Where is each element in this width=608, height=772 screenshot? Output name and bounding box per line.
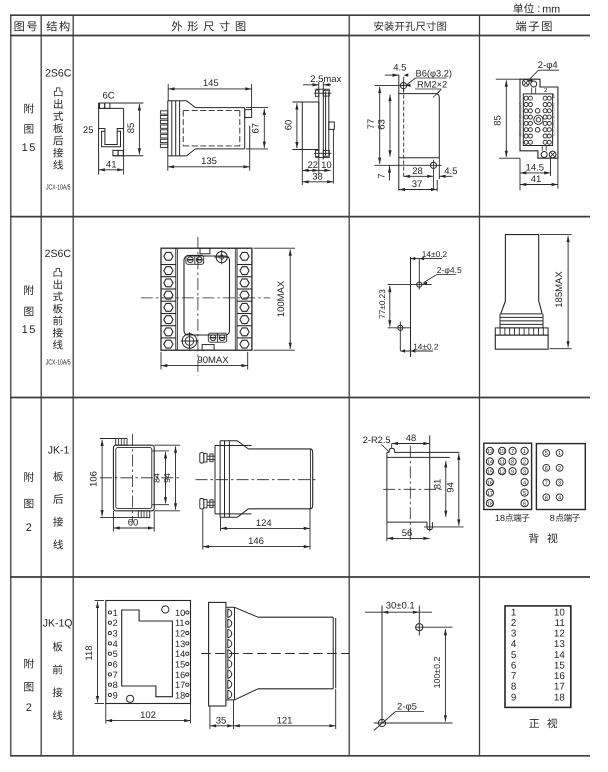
svg-text:1: 1 xyxy=(511,607,516,618)
svg-text:4.5: 4.5 xyxy=(444,166,457,177)
svg-text:77: 77 xyxy=(366,119,377,130)
svg-text:2: 2 xyxy=(511,618,516,629)
svg-text:mm: mm xyxy=(542,3,560,15)
svg-text:16: 16 xyxy=(175,670,185,680)
svg-text:JK-1: JK-1 xyxy=(48,444,70,456)
svg-text:6C: 6C xyxy=(103,90,115,101)
svg-text:63: 63 xyxy=(377,119,388,130)
svg-text:18: 18 xyxy=(495,513,505,523)
svg-text:14±0.2: 14±0.2 xyxy=(413,341,439,351)
svg-text:B6(φ3.2): B6(φ3.2) xyxy=(416,68,453,78)
svg-text:17: 17 xyxy=(487,491,493,497)
svg-text:16: 16 xyxy=(554,671,565,682)
svg-text:1: 1 xyxy=(558,451,561,457)
svg-text:3: 3 xyxy=(511,629,517,640)
svg-text:JCX-10A/5: JCX-10A/5 xyxy=(46,182,71,191)
svg-text:10: 10 xyxy=(321,160,332,171)
svg-text:11: 11 xyxy=(555,618,565,629)
svg-text:4: 4 xyxy=(523,480,526,486)
svg-text:14: 14 xyxy=(175,649,185,659)
svg-text:11: 11 xyxy=(499,460,505,466)
svg-text:2: 2 xyxy=(558,466,561,472)
svg-text:41: 41 xyxy=(106,159,117,170)
svg-text:15: 15 xyxy=(22,324,37,336)
svg-text:1: 1 xyxy=(552,94,555,100)
svg-text:1: 1 xyxy=(523,449,526,455)
svg-text:12: 12 xyxy=(175,629,185,639)
svg-text:9: 9 xyxy=(511,469,514,475)
svg-text:8: 8 xyxy=(511,460,514,466)
svg-text:14±0.2: 14±0.2 xyxy=(422,249,448,259)
svg-text:4.5: 4.5 xyxy=(393,62,406,73)
svg-text:6: 6 xyxy=(511,660,517,671)
svg-text::: : xyxy=(537,3,540,15)
svg-text:146: 146 xyxy=(248,536,264,547)
svg-text:8: 8 xyxy=(113,680,118,690)
svg-text:13: 13 xyxy=(487,449,493,455)
svg-text:11: 11 xyxy=(175,618,185,628)
svg-text:67: 67 xyxy=(250,123,261,134)
svg-text:3: 3 xyxy=(558,481,561,487)
svg-text:100±0.2: 100±0.2 xyxy=(432,657,442,689)
svg-text:118: 118 xyxy=(84,645,95,660)
svg-text:5: 5 xyxy=(511,650,517,661)
svg-text:94: 94 xyxy=(445,482,456,493)
svg-text:30±0.1: 30±0.1 xyxy=(386,601,415,612)
svg-text:2: 2 xyxy=(26,702,32,714)
svg-text:10: 10 xyxy=(554,607,565,618)
svg-text:102: 102 xyxy=(140,710,156,721)
svg-text:JCX-10A/5 JCX-10A/5: JCX-10A/5 JCX-10A/5 xyxy=(551,103,555,137)
svg-text:1: 1 xyxy=(113,608,118,618)
svg-text:28: 28 xyxy=(412,166,423,177)
svg-text:60: 60 xyxy=(283,120,294,131)
svg-text:9: 9 xyxy=(511,692,516,703)
svg-text:8: 8 xyxy=(511,682,517,693)
svg-text:4: 4 xyxy=(511,639,517,650)
svg-text:7: 7 xyxy=(511,449,514,455)
svg-text:15: 15 xyxy=(487,469,493,475)
svg-text:17: 17 xyxy=(175,680,185,690)
svg-text:60: 60 xyxy=(128,518,139,529)
svg-text:85: 85 xyxy=(126,123,137,134)
svg-text:8: 8 xyxy=(550,513,555,523)
svg-text:13: 13 xyxy=(175,639,185,649)
svg-text:37: 37 xyxy=(412,179,423,190)
svg-text:2: 2 xyxy=(113,618,118,628)
svg-text:2: 2 xyxy=(523,460,526,466)
svg-text:2S6C: 2S6C xyxy=(45,248,72,260)
svg-text:10: 10 xyxy=(499,449,505,455)
svg-text:2: 2 xyxy=(26,522,32,534)
svg-text:14: 14 xyxy=(554,650,565,661)
svg-text:15: 15 xyxy=(175,659,185,669)
svg-text:35: 35 xyxy=(216,716,227,727)
svg-text:106: 106 xyxy=(88,471,99,487)
svg-text:7: 7 xyxy=(545,481,548,487)
svg-text:3: 3 xyxy=(523,469,526,475)
svg-text:145: 145 xyxy=(203,78,219,89)
svg-text:48: 48 xyxy=(406,433,416,443)
svg-text:12: 12 xyxy=(554,629,565,640)
svg-text:77±0.23: 77±0.23 xyxy=(378,289,387,319)
svg-text:12: 12 xyxy=(499,469,505,475)
svg-text:15: 15 xyxy=(554,660,565,671)
svg-text:18: 18 xyxy=(554,692,565,703)
svg-text:8: 8 xyxy=(545,495,548,501)
svg-text:5: 5 xyxy=(545,451,548,457)
svg-text:JCX-10A/5 JCX-10A/5: JCX-10A/5 JCX-10A/5 xyxy=(519,103,523,137)
svg-text:6: 6 xyxy=(545,466,548,472)
svg-text:13: 13 xyxy=(554,639,565,650)
svg-text:7: 7 xyxy=(511,671,516,682)
svg-text:JCX-10A/5: JCX-10A/5 xyxy=(46,358,71,367)
svg-text:JK-1Q: JK-1Q xyxy=(43,617,73,629)
svg-text:6: 6 xyxy=(113,659,118,669)
svg-text:9: 9 xyxy=(113,690,118,700)
svg-text:18: 18 xyxy=(175,690,185,700)
svg-text:10: 10 xyxy=(175,608,185,618)
svg-text:2-R2.5: 2-R2.5 xyxy=(363,435,391,445)
svg-text:185MAX: 185MAX xyxy=(554,271,565,308)
svg-text:2-φ4.5: 2-φ4.5 xyxy=(437,265,462,275)
svg-text:90MAX: 90MAX xyxy=(197,355,229,366)
svg-text:2-φ5: 2-φ5 xyxy=(397,702,417,713)
svg-text:5: 5 xyxy=(523,491,526,497)
svg-text:5: 5 xyxy=(113,649,118,659)
svg-text:3: 3 xyxy=(113,629,118,639)
svg-text:RM2×2: RM2×2 xyxy=(417,80,447,90)
svg-text:100MAX: 100MAX xyxy=(276,280,287,317)
svg-text:15: 15 xyxy=(22,142,37,154)
svg-text:2.5max: 2.5max xyxy=(310,74,341,85)
svg-text:16: 16 xyxy=(487,480,493,486)
svg-text:135: 135 xyxy=(201,156,217,167)
svg-text:7: 7 xyxy=(376,173,387,178)
svg-text:4: 4 xyxy=(558,495,561,501)
svg-text:2S6C: 2S6C xyxy=(45,67,72,79)
svg-text:7: 7 xyxy=(113,670,118,680)
svg-text:18: 18 xyxy=(487,501,493,507)
svg-text:25: 25 xyxy=(83,125,94,136)
svg-text:38: 38 xyxy=(312,171,323,182)
svg-text:121: 121 xyxy=(277,716,293,727)
svg-text:124: 124 xyxy=(256,518,272,529)
svg-text:14: 14 xyxy=(487,460,493,466)
svg-text:85: 85 xyxy=(493,115,504,126)
svg-text:56: 56 xyxy=(402,528,413,539)
svg-text:94: 94 xyxy=(162,473,172,483)
svg-text:14.5: 14.5 xyxy=(526,162,545,173)
svg-text:6: 6 xyxy=(523,501,526,507)
svg-text:41: 41 xyxy=(531,174,542,185)
svg-text:4: 4 xyxy=(113,639,118,649)
svg-text:84: 84 xyxy=(152,473,162,483)
svg-text:2-φ4: 2-φ4 xyxy=(538,60,558,71)
svg-text:81: 81 xyxy=(432,479,443,490)
svg-text:17: 17 xyxy=(554,682,565,693)
svg-text:22: 22 xyxy=(308,160,319,171)
